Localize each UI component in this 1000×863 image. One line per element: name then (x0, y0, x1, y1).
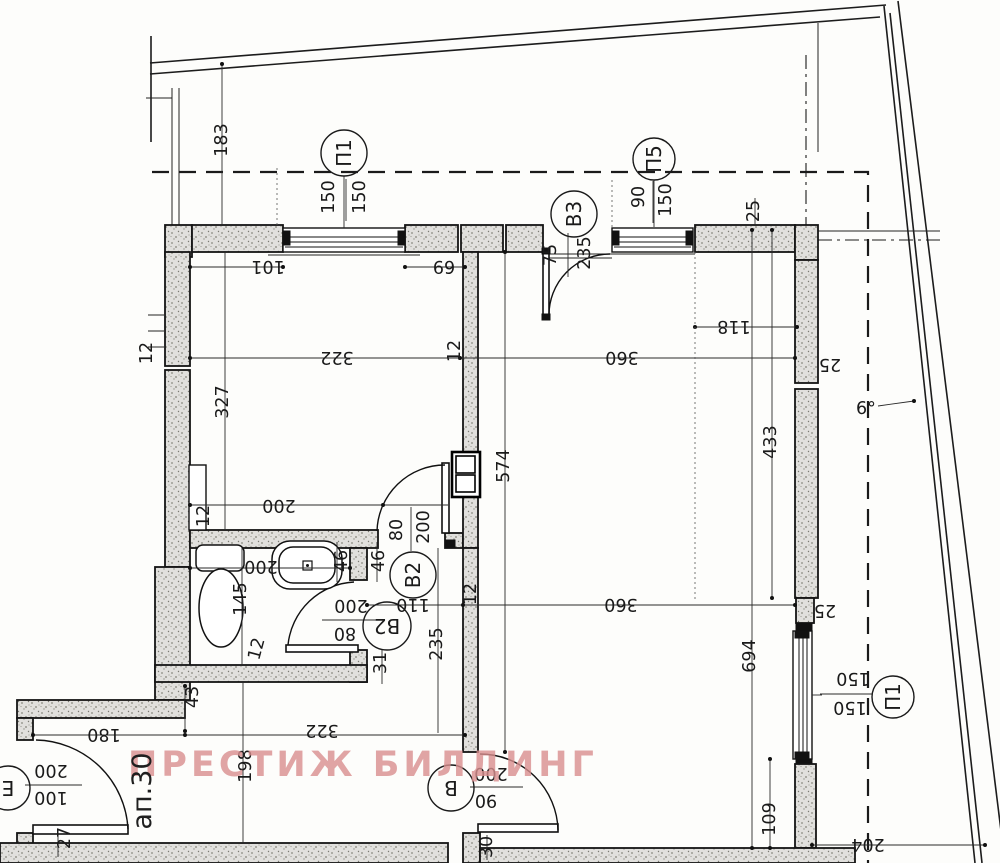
dimension-label-37: 25 (814, 600, 836, 620)
dimension-label-0: 183 (212, 123, 232, 156)
dimension-label-22: 12 (194, 505, 214, 527)
dimension-label-50: 90 (475, 790, 497, 810)
dimension-label-18: 694 (740, 639, 760, 672)
opening-tag-label-1: В3 (562, 201, 586, 227)
dimension-label-46: 27 (55, 827, 75, 849)
dimension-label-39: 150 (833, 697, 866, 717)
dimension-label-8: 150 (656, 183, 676, 216)
door-e-entrance (33, 740, 128, 834)
floor-plan-page: П1В3П5В2В2ВП1Е 1831501501016975235901502… (0, 0, 1000, 863)
dimension-label-4: 69 (433, 256, 455, 276)
dimension-label-33: 360 (604, 594, 637, 614)
watermark-text: ПРЕСТИЖ БИЛДИНГ (128, 745, 598, 785)
dimension-label-3: 101 (251, 256, 284, 276)
dimension-label-24: 200 (414, 510, 434, 543)
opening-tag-label-6: П1 (881, 683, 905, 711)
dimension-label-35: 235 (427, 627, 447, 660)
dimension-label-38: 150 (836, 668, 869, 688)
dimension-label-23: 80 (387, 519, 407, 541)
dimension-label-11: 322 (320, 347, 353, 367)
dimension-label-41: 204 (851, 834, 884, 854)
dimension-label-27: 200 (244, 556, 277, 576)
window-p1-right (793, 631, 812, 759)
dimension-label-44: 322 (305, 720, 338, 740)
dimension-label-6: 235 (575, 236, 595, 269)
dimension-label-36: 31 (371, 652, 391, 674)
opening-tag-label-0: П1 (332, 139, 356, 167)
dimension-label-47: 200 (34, 760, 67, 780)
dimension-label-26: 46 (369, 550, 389, 572)
dimension-label-40: 109 (760, 802, 780, 835)
dimension-label-43: 180 (87, 724, 120, 744)
dimension-label-15: 12 (137, 342, 157, 364)
opening-tag-label-4: В2 (374, 614, 400, 638)
dimension-label-17: 433 (761, 425, 781, 458)
opening-tag-label-2: П5 (642, 145, 666, 173)
dimension-label-13: 360 (605, 347, 638, 367)
opening-tag-label-7: Е (2, 776, 15, 800)
dimension-label-25: 46 (332, 550, 352, 572)
dimension-label-21: 200 (262, 495, 295, 515)
dimension-label-19: 25 (819, 354, 841, 374)
dimension-label-7: 90 (629, 186, 649, 208)
dimension-label-28: 145 (231, 582, 251, 615)
dimension-label-9: 25 (744, 200, 764, 222)
apartment-number: ап.30 (127, 752, 158, 829)
dimension-label-34: 12 (461, 583, 481, 605)
dimension-label-10: 118 (717, 316, 750, 336)
shaft (452, 452, 480, 497)
floor-plan-drawing: П1В3П5В2В2ВП1Е 1831501501016975235901502… (0, 0, 1000, 863)
dimension-label-51: 30 (477, 836, 497, 858)
dimension-label-14: 327 (213, 385, 233, 418)
dimension-label-29: 12 (244, 636, 269, 663)
opening-tag-label-3: В2 (401, 562, 425, 588)
dimension-label-5: 75 (541, 244, 561, 266)
dimension-label-42: 43 (183, 686, 203, 708)
dimension-label-30: 200 (334, 595, 367, 615)
dimension-label-48: 100 (34, 787, 67, 807)
axis-dashdot-lines (806, 23, 942, 406)
dimension-label-16: 574 (494, 449, 514, 482)
window-p1-top (268, 228, 420, 255)
dimension-label-20: 6° (856, 399, 876, 419)
dimension-label-2: 150 (350, 180, 370, 213)
dimension-label-32: 110 (396, 594, 429, 614)
dimension-label-12: 12 (445, 340, 465, 362)
site-boundary-lines (146, 1, 1000, 863)
dimension-label-1: 150 (319, 180, 339, 213)
dimension-label-31: 80 (334, 623, 356, 643)
